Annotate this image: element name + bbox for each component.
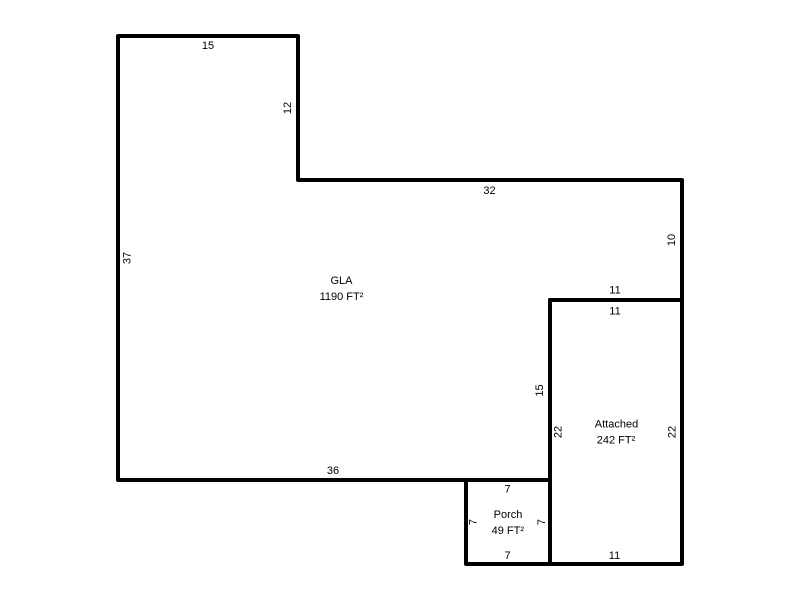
svg-text:36: 36 bbox=[327, 465, 339, 477]
svg-text:7: 7 bbox=[536, 519, 548, 525]
svg-text:Attached: Attached bbox=[595, 419, 638, 431]
svg-text:7: 7 bbox=[504, 550, 510, 562]
svg-text:1190 FT²: 1190 FT² bbox=[320, 291, 364, 303]
svg-text:12: 12 bbox=[282, 102, 294, 114]
svg-text:7: 7 bbox=[504, 484, 510, 496]
svg-text:15: 15 bbox=[202, 40, 214, 52]
svg-text:Porch: Porch bbox=[494, 509, 523, 521]
svg-text:11: 11 bbox=[609, 285, 620, 297]
svg-text:15: 15 bbox=[534, 384, 546, 396]
svg-text:22: 22 bbox=[553, 426, 565, 438]
svg-text:11: 11 bbox=[609, 306, 620, 318]
svg-text:7: 7 bbox=[467, 519, 479, 525]
svg-text:37: 37 bbox=[122, 252, 134, 264]
svg-text:GLA: GLA bbox=[330, 275, 353, 287]
svg-text:32: 32 bbox=[483, 185, 495, 197]
svg-text:49 FT²: 49 FT² bbox=[492, 525, 525, 537]
svg-text:10: 10 bbox=[666, 234, 678, 246]
svg-text:22: 22 bbox=[667, 426, 679, 438]
svg-text:11: 11 bbox=[609, 550, 620, 562]
svg-text:242 FT²: 242 FT² bbox=[597, 435, 636, 447]
